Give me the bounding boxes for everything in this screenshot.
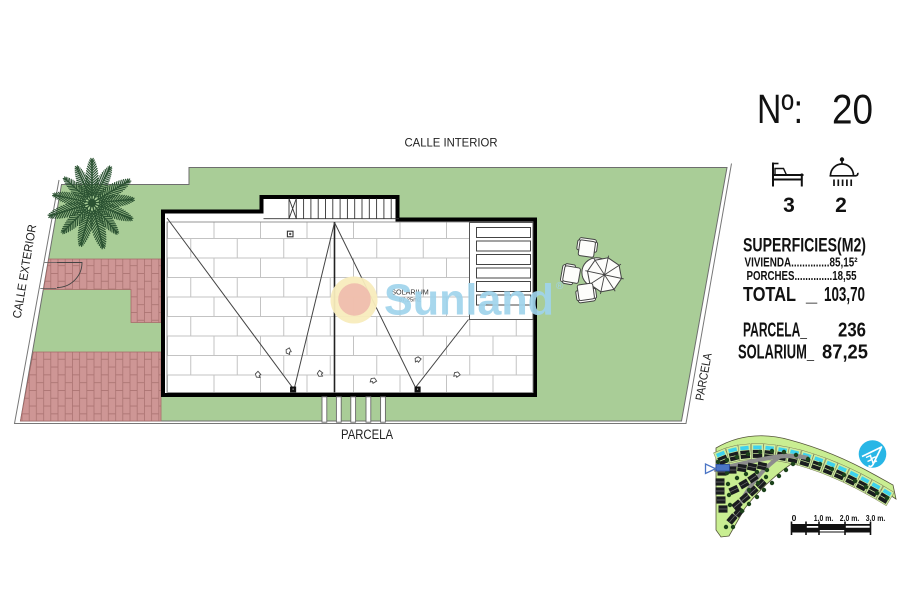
svg-text:VIVIENDA..............85,15²: VIVIENDA..............85,15² [745,256,858,270]
svg-text:2.0 m.: 2.0 m. [840,513,860,523]
svg-text:TOTAL: TOTAL [743,284,796,306]
svg-text:®: ® [556,281,564,292]
svg-text:_: _ [805,284,818,306]
svg-text:CALLE INTERIOR: CALLE INTERIOR [405,138,498,150]
svg-text:2: 2 [835,194,847,217]
svg-text:SOLARIUM_: SOLARIUM_ [738,342,815,364]
svg-text:PARCELA_: PARCELA_ [743,320,808,342]
svg-text:Sunland: Sunland [384,276,554,325]
svg-text:PORCHES..............18,55: PORCHES..............18,55 [747,269,857,283]
svg-text:1.0 m.: 1.0 m. [814,513,834,523]
svg-text:3: 3 [783,194,795,217]
svg-text:103,70: 103,70 [824,284,865,306]
svg-text:PARCELA: PARCELA [341,427,393,442]
svg-text:Nº:: Nº: [757,86,803,132]
svg-text:SUPERFICIES(M2): SUPERFICIES(M2) [743,236,866,257]
svg-text:3.0 m.: 3.0 m. [866,513,886,523]
svg-text:20: 20 [832,86,873,133]
svg-text:87,25: 87,25 [822,342,868,364]
svg-text:0: 0 [792,513,797,523]
svg-text:236: 236 [838,320,866,342]
